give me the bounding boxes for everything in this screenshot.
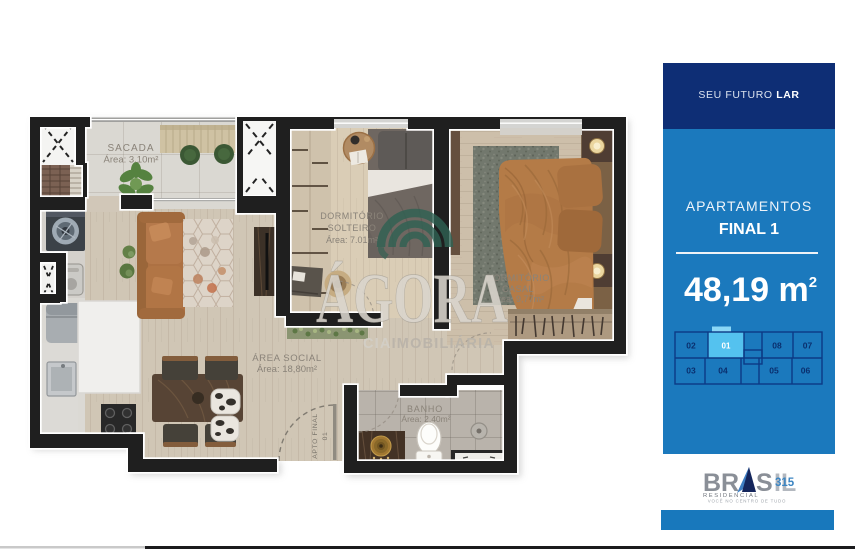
svg-text:SACADA: SACADA (107, 143, 154, 154)
svg-text:05: 05 (769, 366, 779, 376)
svg-text:07: 07 (803, 341, 813, 351)
svg-text:SEU FUTURO LAR: SEU FUTURO LAR (698, 89, 799, 101)
svg-text:ÁREA SOCIAL: ÁREA SOCIAL (252, 353, 321, 364)
svg-text:CIAIMOBILIÁRIA: CIAIMOBILIÁRIA (363, 335, 495, 352)
svg-text:03: 03 (686, 366, 696, 376)
svg-text:08: 08 (772, 341, 782, 351)
svg-text:48,19 m2: 48,19 m2 (684, 271, 817, 309)
svg-text:ÁGORA: ÁGORA (316, 260, 508, 338)
svg-text:Área: 7.01m²: Área: 7.01m² (326, 235, 378, 245)
svg-text:Área: 18,80m²: Área: 18,80m² (257, 364, 317, 375)
svg-text:FINAL 1: FINAL 1 (719, 221, 779, 238)
svg-text:01: 01 (722, 342, 731, 351)
svg-text:BANHO: BANHO (407, 404, 443, 414)
svg-text:06: 06 (801, 366, 811, 376)
svg-text:Área: 3.10m²: Área: 3.10m² (104, 155, 159, 166)
svg-text:Área: 2.40m²: Área: 2.40m² (401, 414, 450, 424)
svg-text:01: 01 (322, 432, 329, 441)
svg-text:SOLTEIRO: SOLTEIRO (328, 223, 377, 233)
svg-text:02: 02 (686, 341, 696, 351)
svg-text:APTO FINAL: APTO FINAL (312, 413, 319, 459)
svg-text:VOCÊ NO CENTRO DE TUDO: VOCÊ NO CENTRO DE TUDO (708, 499, 787, 504)
svg-text:04: 04 (718, 366, 728, 376)
svg-text:DORMITÓRIO: DORMITÓRIO (320, 211, 384, 221)
svg-text:APARTAMENTOS: APARTAMENTOS (686, 198, 813, 214)
svg-text:315: 315 (775, 477, 795, 489)
